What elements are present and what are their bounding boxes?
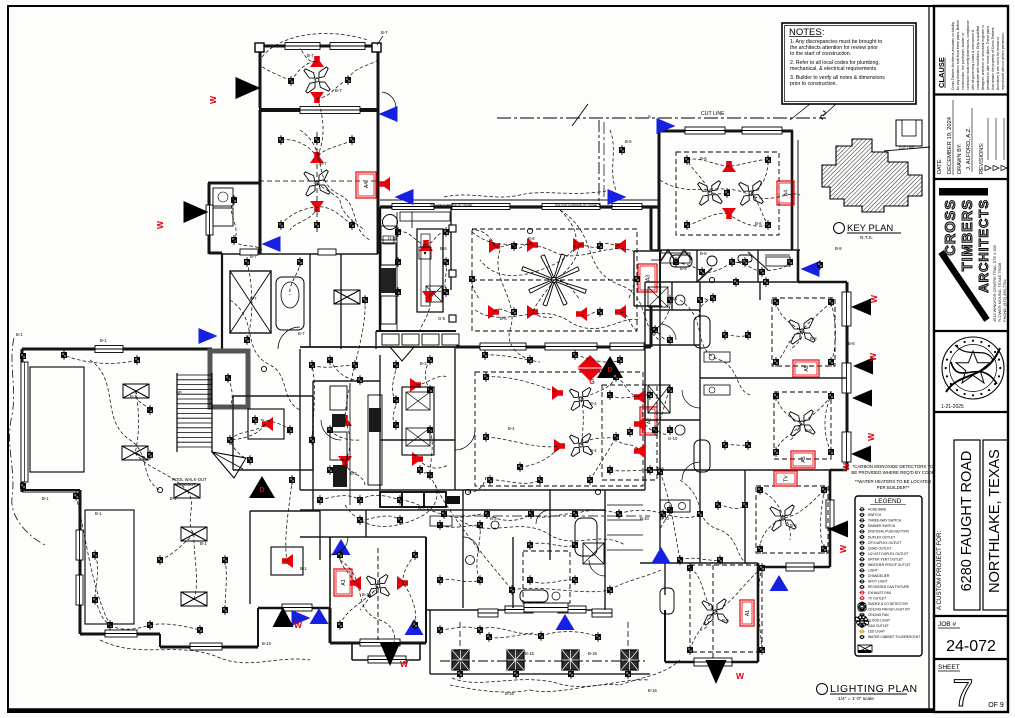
- svg-text:PER BUILDER**: PER BUILDER**: [877, 485, 910, 490]
- svg-text:Architects & are not to be reu: Architects & are not to be reused or: [996, 36, 1000, 90]
- svg-text:SHEET: SHEET: [938, 664, 960, 671]
- svg-text:24-072: 24-072: [946, 638, 996, 655]
- svg-text:RECESSED CAN FIXTURE: RECESSED CAN FIXTURE: [868, 585, 910, 589]
- svg-text:B-10: B-10: [660, 516, 670, 521]
- svg-text:B-9: B-9: [657, 466, 664, 471]
- svg-text:DATE:: DATE:: [937, 158, 943, 174]
- svg-text:**WATER HEATERS TO BE LOCATED: **WATER HEATERS TO BE LOCATED: [855, 479, 931, 484]
- svg-text:G-10: G-10: [668, 296, 678, 301]
- svg-text:B-1: B-1: [42, 496, 49, 501]
- svg-text:LED LIGHT: LED LIGHT: [868, 630, 885, 634]
- svg-text:B-1: B-1: [100, 338, 107, 343]
- svg-text:to the start of construction.: to the start of construction.: [790, 51, 851, 57]
- svg-text:B-4: B-4: [590, 448, 597, 453]
- svg-text:SWITCH: SWITCH: [868, 513, 882, 517]
- svg-text:B-3: B-3: [490, 516, 497, 521]
- svg-text:A5: A5: [801, 456, 807, 462]
- svg-text:CEILING FAN: CEILING FAN: [868, 613, 889, 617]
- svg-text:CEILING FAN W/ LIGHT KIT: CEILING FAN W/ LIGHT KIT: [868, 607, 910, 611]
- svg-text:B-9: B-9: [805, 428, 812, 433]
- svg-text:OF 9: OF 9: [988, 702, 1004, 709]
- svg-text:B-1: B-1: [300, 566, 307, 571]
- svg-text:WATER CABINET FLUORESCENT: WATER CABINET FLUORESCENT: [868, 635, 920, 639]
- svg-text:B-8: B-8: [835, 246, 842, 251]
- svg-text:contractor must verify dimensi: contractor must verify dimensions, compl…: [966, 20, 970, 90]
- svg-text:THREE-WAY SWITCH: THREE-WAY SWITCH: [868, 519, 902, 523]
- svg-text:B-8: B-8: [700, 251, 707, 256]
- svg-text:that remain the property of Cr: that remain the property of Cross Timber…: [991, 27, 995, 90]
- svg-text:7: 7: [952, 673, 973, 715]
- svg-text:B-8: B-8: [810, 336, 817, 341]
- svg-text:HOSE BIBB: HOSE BIBB: [868, 508, 887, 512]
- svg-text:B-16: B-16: [525, 651, 535, 656]
- svg-text:TV: TV: [784, 475, 790, 482]
- svg-text:TIMBERS: TIMBERS: [960, 199, 976, 271]
- svg-text:CHANDELIER: CHANDELIER: [868, 574, 890, 578]
- svg-text:GAS OUTLET: GAS OUTLET: [868, 624, 889, 628]
- svg-text:1/2 HOT DUPLEX OUTLET: 1/2 HOT DUPLEX OUTLET: [868, 552, 908, 556]
- svg-text:W: W: [838, 544, 848, 553]
- svg-text:G-10: G-10: [668, 436, 678, 441]
- svg-text:W: W: [155, 220, 165, 229]
- svg-text:1-21-2025: 1-21-2025: [941, 404, 964, 410]
- svg-text:DRAWN BY:: DRAWN BY:: [957, 143, 963, 174]
- svg-text:A5: A5: [804, 365, 810, 371]
- svg-text:B-6: B-6: [440, 246, 447, 251]
- svg-text:LIGHT: LIGHT: [868, 569, 878, 573]
- svg-text:W: W: [294, 620, 303, 630]
- svg-text:B-3: B-3: [420, 361, 427, 366]
- svg-text:TV OUTLET: TV OUTLET: [868, 596, 886, 600]
- svg-text:D: D: [607, 367, 612, 374]
- svg-text:NORTHLAKE, TEXAS: NORTHLAKE, TEXAS: [987, 449, 1003, 593]
- svg-text:1/4" = 1'-0" scale: 1/4" = 1'-0" scale: [838, 696, 874, 702]
- svg-text:WEATHER PROOF OUTLET: WEATHER PROOF OUTLET: [868, 563, 911, 567]
- svg-text:B-6: B-6: [500, 316, 507, 321]
- svg-text:B-4: B-4: [508, 426, 515, 431]
- svg-text:B-1: B-1: [16, 332, 23, 337]
- svg-text:CUT LINE: CUT LINE: [899, 146, 915, 150]
- svg-text:A CUSTOM PROJECT FOR:: A CUSTOM PROJECT FOR:: [936, 531, 943, 610]
- svg-text:EXHAUST FAN: EXHAUST FAN: [868, 591, 891, 595]
- svg-text:G: G: [589, 379, 595, 386]
- svg-text:B-16: B-16: [505, 691, 515, 696]
- svg-text:A4: A4: [364, 182, 370, 188]
- svg-text:W: W: [869, 294, 879, 303]
- svg-text:CUT LINE: CUT LINE: [701, 111, 725, 117]
- svg-text:coordinate with conditions. On: coordinate with conditions. Only a quali…: [976, 26, 980, 90]
- svg-text:LEGEND: LEGEND: [875, 498, 902, 505]
- svg-text:reproduced without written per: reproduced without written permission.: [1001, 32, 1005, 90]
- svg-text:B-13: B-13: [262, 641, 272, 646]
- svg-text:B-8: B-8: [680, 266, 687, 271]
- svg-text:B-6: B-6: [755, 221, 762, 226]
- svg-text:B-16: B-16: [588, 651, 598, 656]
- svg-text:B-3: B-3: [350, 471, 357, 476]
- svg-text:W: W: [841, 462, 851, 471]
- svg-text:D: D: [259, 487, 264, 494]
- svg-text:W: W: [400, 659, 409, 669]
- svg-text:B-7: B-7: [298, 331, 305, 336]
- svg-text:B-6: B-6: [625, 139, 632, 144]
- svg-text:JOB #: JOB #: [938, 621, 956, 628]
- svg-text:permitted to alter these plans: permitted to alter these plans. These pl…: [986, 26, 990, 90]
- svg-text:B-2: B-2: [130, 394, 137, 399]
- svg-text:RAIL FOR GUARDRAIL BY OWNER: RAIL FOR GUARDRAIL BY OWNER: [430, 203, 473, 207]
- svg-text:*CARBON MONOXIDE DETECTORS TO: *CARBON MONOXIDE DETECTORS TO: [853, 464, 935, 469]
- svg-text:B-16: B-16: [648, 688, 658, 693]
- svg-text:B-8: B-8: [848, 341, 855, 346]
- svg-text:mechanical, & electrical requi: mechanical, & electrical requirements.: [790, 66, 878, 72]
- svg-text:A1: A1: [745, 610, 751, 616]
- svg-text:PHONE: (972) 355-7754: PHONE: (972) 355-7754: [1002, 279, 1007, 322]
- svg-text:QUAD OUTLET: QUAD OUTLET: [868, 546, 891, 550]
- svg-text:A1: A1: [341, 579, 347, 585]
- svg-text:GFI DUPLEX OUTLET: GFI DUPLEX OUTLET: [868, 541, 902, 545]
- svg-text:J. ALFORD, A.Z.: J. ALFORD, A.Z.: [966, 127, 972, 170]
- svg-text:B-7: B-7: [250, 296, 257, 301]
- svg-text:HIDEOUT: HIDEOUT: [177, 482, 196, 487]
- svg-text:S: S: [648, 114, 651, 119]
- svg-text:designer, architect, or struct: designer, architect, or structural engin…: [981, 25, 985, 90]
- svg-text:DECEMBER 19, 2024: DECEMBER 19, 2024: [947, 116, 953, 174]
- svg-text:DUPLEX OUTLET: DUPLEX OUTLET: [868, 535, 895, 539]
- svg-text:SMOKE & CO DETECTOR: SMOKE & CO DETECTOR: [868, 602, 908, 606]
- svg-text:REVISIONS:: REVISIONS:: [979, 142, 985, 174]
- svg-text:A2: A2: [647, 418, 653, 424]
- svg-text:B-6: B-6: [528, 236, 535, 241]
- svg-text:B-9: B-9: [790, 523, 797, 528]
- svg-text:for any deviation built from t: for any deviation built from these plans…: [956, 20, 960, 90]
- svg-text:B-4: B-4: [590, 401, 597, 406]
- svg-text:B-7: B-7: [335, 88, 342, 93]
- svg-text:LIGHTING PLAN: LIGHTING PLAN: [830, 683, 918, 695]
- svg-text:CROSS: CROSS: [943, 199, 959, 256]
- svg-text:BE PROVIDED WHERE REQ'D BY COD: BE PROVIDED WHERE REQ'D BY CODE: [851, 470, 934, 475]
- svg-text:B-1: B-1: [170, 496, 177, 501]
- svg-text:B-7: B-7: [320, 161, 327, 166]
- svg-text:W: W: [868, 352, 878, 361]
- svg-text:A3: A3: [646, 275, 652, 281]
- svg-text:ARCHITECTS: ARCHITECTS: [976, 199, 991, 293]
- svg-text:FLOOD LIGHT: FLOOD LIGHT: [868, 619, 890, 623]
- svg-text:W: W: [208, 95, 218, 104]
- svg-text:KEY PLAN: KEY PLAN: [847, 223, 893, 234]
- svg-text:SPOT LIGHT: SPOT LIGHT: [868, 580, 888, 584]
- svg-text:B-1: B-1: [95, 511, 102, 516]
- svg-text:Cross Timbers Architects assum: Cross Timbers Architects assumes no liab…: [951, 22, 955, 90]
- svg-text:B-6: B-6: [700, 156, 707, 161]
- svg-text:B-7: B-7: [381, 30, 388, 35]
- svg-text:W: W: [736, 671, 745, 681]
- svg-text:B-7: B-7: [307, 53, 314, 58]
- svg-text:G-5: G-5: [438, 316, 446, 321]
- svg-text:W: W: [866, 432, 876, 441]
- svg-text:A4: A4: [784, 190, 790, 196]
- svg-text:B-1: B-1: [200, 541, 207, 546]
- svg-text:DRYER VENT OUTLET: DRYER VENT OUTLET: [868, 557, 903, 561]
- svg-text:DISPOSAL PUSH BUTTON: DISPOSAL PUSH BUTTON: [868, 530, 909, 534]
- svg-text:N.T.S.: N.T.S.: [860, 235, 873, 241]
- svg-text:RAIL FOR GUARDRAIL BY OWNER: RAIL FOR GUARDRAIL BY OWNER: [555, 203, 598, 207]
- svg-text:construction, the purchaser, b: construction, the purchaser, builder, or: [961, 32, 965, 90]
- svg-text:UP: UP: [176, 390, 182, 395]
- svg-text:prior to construction.: prior to construction.: [790, 81, 837, 87]
- svg-text:with all governing codes & ord: with all governing codes & ordinances &: [971, 29, 975, 90]
- svg-text:B-9: B-9: [722, 618, 729, 623]
- svg-text:DIMMER SWITCH: DIMMER SWITCH: [868, 524, 896, 528]
- svg-text:6280 FAUGHT ROAD: 6280 FAUGHT ROAD: [959, 451, 975, 592]
